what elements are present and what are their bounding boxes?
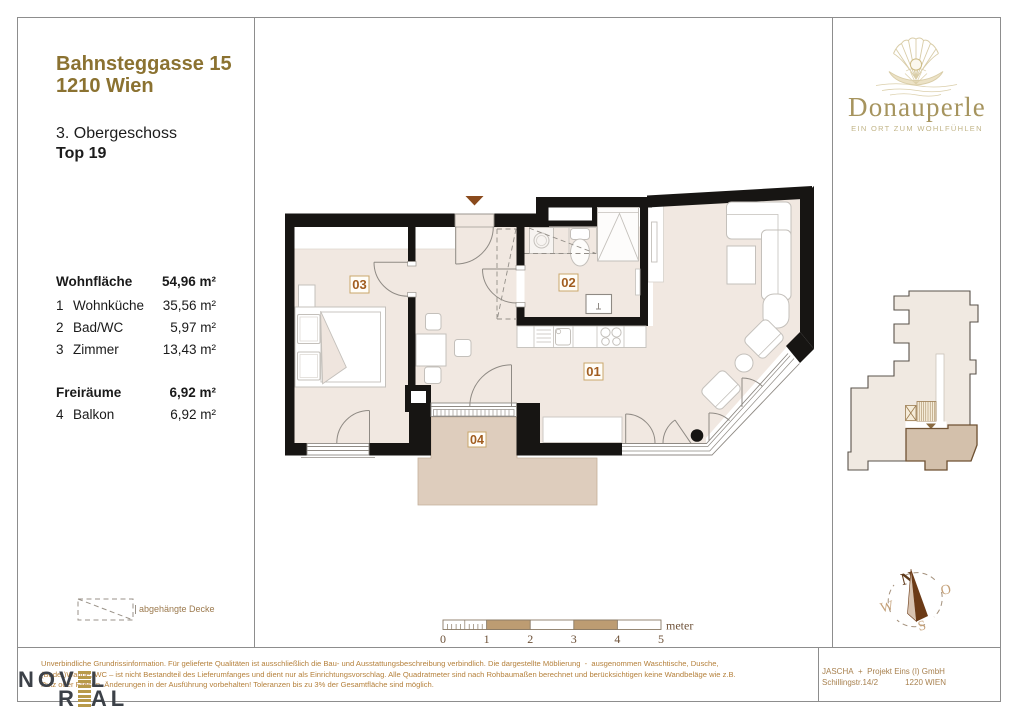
svg-text:0: 0 xyxy=(440,632,446,646)
svg-text:S: S xyxy=(917,618,928,634)
svg-text:O: O xyxy=(939,582,952,599)
svg-text:meter: meter xyxy=(666,619,693,633)
svg-text:5: 5 xyxy=(658,632,664,646)
svg-text:W: W xyxy=(879,598,896,616)
svg-text:03: 03 xyxy=(352,277,366,292)
svg-text:4: 4 xyxy=(614,632,620,646)
svg-text:3: 3 xyxy=(571,632,577,646)
svg-text:04: 04 xyxy=(470,433,484,447)
svg-text:2: 2 xyxy=(527,632,533,646)
svg-text:02: 02 xyxy=(561,275,575,290)
svg-text:01: 01 xyxy=(586,364,600,379)
svg-text:1: 1 xyxy=(484,632,490,646)
